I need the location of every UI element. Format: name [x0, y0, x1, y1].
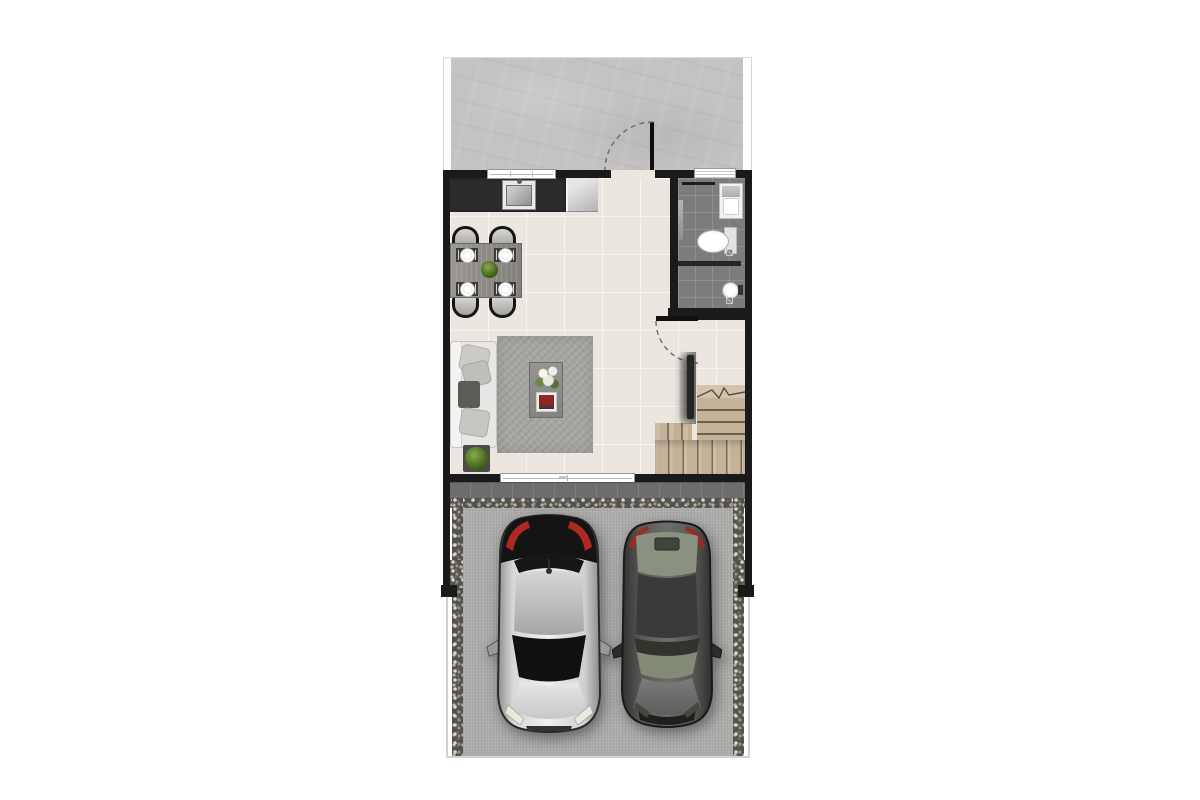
porch-tile-strip [450, 482, 745, 498]
flower-vase [534, 365, 560, 393]
vanity-counter [722, 186, 740, 197]
staircase-lower-steps [655, 423, 692, 440]
sofa [450, 341, 497, 448]
coffee-table [529, 362, 563, 418]
property-line-left [446, 597, 448, 758]
patio-door-swing-arc [600, 118, 660, 174]
property-line-right [748, 597, 750, 758]
plant-leaves [465, 447, 488, 470]
wall-footing [441, 585, 457, 597]
silver-hatchback-car [486, 509, 612, 739]
boundary-wall-right [745, 482, 752, 586]
staircase-upper-run [697, 385, 745, 440]
floor-plan-canvas [0, 0, 1200, 800]
sink-faucet [517, 179, 522, 184]
bathroom-partition-wall [670, 170, 678, 320]
gravel-border-left [452, 498, 463, 758]
towel-bar [682, 182, 715, 185]
railing-wall [687, 355, 694, 419]
gray-sedan-car [612, 516, 722, 732]
sink-basin [506, 185, 532, 206]
shower-valve [738, 285, 743, 295]
bathroom-door-leaf [678, 200, 683, 240]
shower-partition [678, 261, 741, 266]
gravel-border [450, 498, 745, 508]
floor-drain [726, 249, 733, 256]
backyard-patio [451, 58, 743, 170]
patio-door-opening [611, 170, 655, 179]
bathroom-vanity-sink [719, 183, 743, 219]
stair-break-line [697, 385, 745, 401]
patio-frame [443, 57, 752, 170]
plate [498, 248, 513, 263]
potted-plant [463, 445, 490, 472]
vanity-basin [723, 198, 739, 215]
sofa-side-table [458, 381, 480, 408]
property-line-front [446, 756, 750, 758]
plate [460, 248, 475, 263]
plate [498, 282, 513, 297]
plate [460, 282, 475, 297]
refrigerator [566, 178, 598, 212]
place-setting [456, 282, 478, 296]
stair-railing [679, 352, 696, 424]
place-setting [494, 248, 516, 262]
boundary-wall-left [443, 482, 450, 586]
kitchen-sink [502, 180, 536, 210]
place-setting [456, 248, 478, 262]
floor-drain [726, 297, 733, 304]
magazine-tray [536, 392, 557, 412]
place-setting [494, 282, 516, 296]
staircase-landing [655, 440, 745, 474]
stair-treads [697, 399, 745, 440]
table-centerpiece-plant [481, 261, 498, 278]
kitchen-window [487, 169, 556, 179]
wall-footing [738, 585, 754, 597]
toilet-bowl [697, 230, 729, 253]
gravel-border-right [733, 498, 744, 758]
window-latch [559, 476, 568, 479]
sofa-pillow [458, 407, 491, 438]
